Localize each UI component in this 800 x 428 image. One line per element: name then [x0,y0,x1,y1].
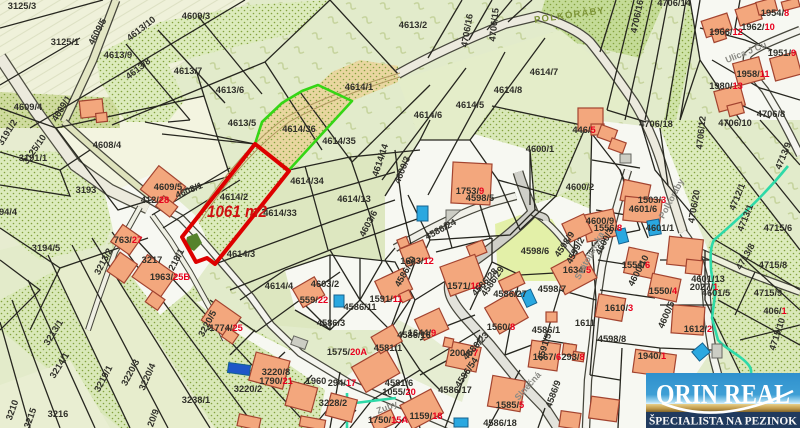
svg-text:4614/35: 4614/35 [322,136,356,146]
svg-text:1966/12: 1966/12 [709,27,743,37]
svg-text:4614/2: 4614/2 [220,192,248,202]
svg-text:4598/5: 4598/5 [466,193,494,203]
svg-text:4598/6: 4598/6 [521,246,549,256]
svg-text:4603/2: 4603/2 [311,279,339,289]
svg-text:4601/5: 4601/5 [702,288,730,298]
svg-text:1644/9: 1644/9 [408,328,436,338]
svg-text:1611: 1611 [575,318,595,328]
svg-text:ŠPECIALISTA NA PEZINOK: ŠPECIALISTA NA PEZINOK [649,415,797,428]
svg-text:4586/3: 4586/3 [317,318,345,328]
svg-text:406/1: 406/1 [763,306,786,316]
svg-text:3228/2: 3228/2 [319,398,347,408]
svg-text:4614/5: 4614/5 [456,100,484,110]
svg-text:4600/9: 4600/9 [586,216,614,226]
svg-text:4613/7: 4613/7 [174,66,202,76]
svg-text:4581/1: 4581/1 [374,343,402,353]
svg-text:4613/5: 4613/5 [228,118,256,128]
svg-text:4586/27: 4586/27 [493,289,527,299]
svg-text:4613/2: 4613/2 [399,20,427,30]
svg-text:1610/3: 1610/3 [605,303,633,313]
svg-text:4586/17: 4586/17 [438,385,472,395]
svg-text:1980/13: 1980/13 [709,81,743,91]
svg-text:1575/20A: 1575/20A [327,347,368,357]
svg-text:3194/5: 3194/5 [32,243,60,253]
svg-text:294/17: 294/17 [328,378,356,388]
svg-text:1958/11: 1958/11 [736,69,769,79]
svg-text:1954/8: 1954/8 [761,8,789,18]
svg-text:4614/8: 4614/8 [494,85,522,95]
svg-text:3217: 3217 [142,255,163,265]
svg-text:4598/8: 4598/8 [598,334,626,344]
svg-text:4598/7: 4598/7 [538,284,566,294]
svg-text:3193: 3193 [76,185,97,195]
svg-text:4715/6: 4715/6 [764,223,792,233]
svg-text:1061 m2: 1061 m2 [207,202,267,221]
svg-text:1940/1: 1940/1 [638,351,666,361]
svg-text:559/22: 559/22 [300,295,328,305]
svg-text:4706/8: 4706/8 [757,109,785,119]
svg-text:293/8: 293/8 [561,352,584,362]
svg-text:446/5: 446/5 [572,125,595,135]
svg-text:4614/3: 4614/3 [227,249,255,259]
svg-text:4614/1: 4614/1 [345,82,373,92]
svg-text:1963/25B: 1963/25B [150,272,191,282]
svg-text:1790/21: 1790/21 [259,376,293,386]
svg-text:4601/6: 4601/6 [629,204,657,214]
svg-text:1750/15A: 1750/15A [368,415,409,425]
svg-text:1591/11: 1591/11 [369,294,402,304]
svg-text:4614/33: 4614/33 [263,208,297,218]
svg-text:1159/18: 1159/18 [409,411,442,421]
svg-text:4613/6: 4613/6 [216,85,244,95]
svg-text:1612/2: 1612/2 [684,324,712,334]
svg-text:4706/14: 4706/14 [657,0,691,8]
svg-text:4613/9: 4613/9 [104,50,132,60]
svg-text:763/27: 763/27 [114,235,142,245]
svg-text:4608/4: 4608/4 [93,140,122,150]
svg-text:1774/25: 1774/25 [209,323,243,333]
svg-text:4609/3: 4609/3 [182,11,210,21]
svg-text:4614/34: 4614/34 [290,176,324,186]
svg-text:94/4: 94/4 [0,207,18,217]
svg-text:1951/9: 1951/9 [768,48,796,58]
svg-text:4706/10: 4706/10 [718,118,752,128]
svg-text:1055/20: 1055/20 [382,387,416,397]
svg-text:4609/5: 4609/5 [154,182,182,192]
svg-text:3125/3: 3125/3 [8,1,36,11]
svg-text:4586/18: 4586/18 [483,418,517,428]
svg-text:4614/7: 4614/7 [530,67,558,77]
svg-text:4715/8: 4715/8 [759,260,787,270]
svg-text:4614/6: 4614/6 [414,110,442,120]
svg-text:4614/13: 4614/13 [337,194,371,204]
svg-text:3220/2: 3220/2 [234,384,262,394]
svg-text:3238/1: 3238/1 [182,395,210,405]
svg-text:1550/4: 1550/4 [649,286,678,296]
svg-text:3216: 3216 [48,409,69,419]
svg-text:4600/2: 4600/2 [566,182,594,192]
svg-text:4609/4: 4609/4 [14,102,43,112]
svg-text:3125/1: 3125/1 [51,37,79,47]
svg-text:4601/1: 4601/1 [646,223,674,233]
svg-text:412/28: 412/28 [141,195,169,205]
svg-text:ORIN REAL: ORIN REAL [656,379,790,409]
svg-text:1960: 1960 [306,376,327,386]
svg-text:4715/9: 4715/9 [754,288,782,298]
svg-text:1560/8: 1560/8 [487,322,515,332]
svg-text:4614/36: 4614/36 [282,124,316,134]
svg-text:4706/18: 4706/18 [639,119,673,129]
svg-text:4600/1: 4600/1 [526,144,554,154]
svg-text:1962/10: 1962/10 [741,22,775,32]
svg-text:4614/4: 4614/4 [265,281,294,291]
